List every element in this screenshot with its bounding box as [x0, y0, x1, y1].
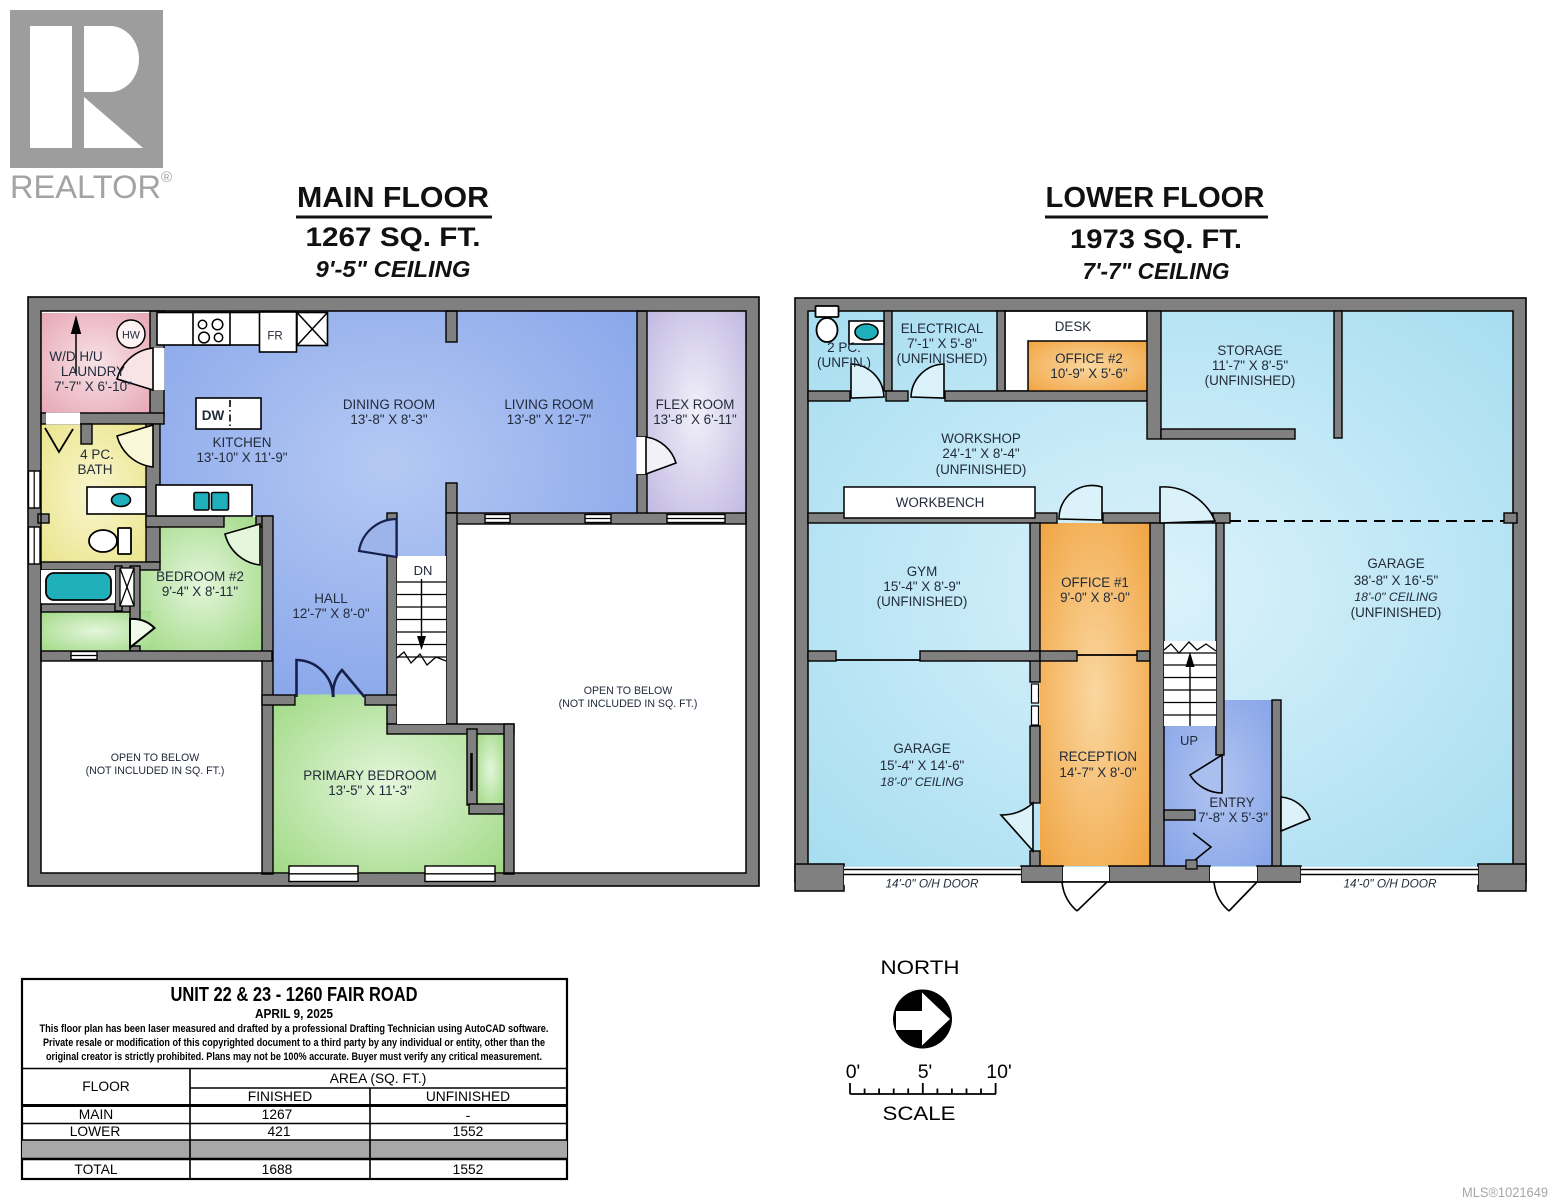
svg-text:LAUNDRY: LAUNDRY: [61, 364, 125, 379]
svg-text:14'-0" O/H DOOR: 14'-0" O/H DOOR: [1344, 877, 1437, 891]
svg-text:LOWER FLOOR: LOWER FLOOR: [1046, 182, 1265, 214]
svg-text:ENTRY: ENTRY: [1209, 795, 1254, 810]
svg-text:(NOT INCLUDED IN SQ. FT.): (NOT INCLUDED IN SQ. FT.): [559, 698, 698, 710]
svg-text:18'-0" CEILING: 18'-0" CEILING: [880, 775, 963, 789]
svg-text:5': 5': [918, 1061, 933, 1083]
svg-text:STORAGE: STORAGE: [1217, 343, 1282, 358]
svg-text:FINISHED: FINISHED: [248, 1089, 312, 1104]
svg-text:FLEX ROOM: FLEX ROOM: [656, 397, 735, 412]
svg-text:7'-8" X 5'-3": 7'-8" X 5'-3": [1198, 810, 1268, 825]
svg-text:13'-8" X 6'-11": 13'-8" X 6'-11": [653, 412, 737, 427]
svg-text:9'-0" X 8'-0": 9'-0" X 8'-0": [1060, 590, 1130, 605]
svg-text:DESK: DESK: [1055, 319, 1092, 334]
svg-text:MAIN FLOOR: MAIN FLOOR: [297, 182, 489, 214]
svg-text:WORKBENCH: WORKBENCH: [896, 495, 985, 510]
svg-text:REALTOR: REALTOR: [10, 169, 161, 205]
svg-text:OPEN TO BELOW: OPEN TO BELOW: [111, 752, 200, 764]
svg-text:15'-4" X 14'-6": 15'-4" X 14'-6": [880, 758, 965, 773]
svg-text:W/D H/U: W/D H/U: [49, 349, 102, 364]
svg-text:GARAGE: GARAGE: [893, 741, 950, 756]
svg-text:(UNFINISHED): (UNFINISHED): [877, 594, 968, 609]
svg-text:DINING ROOM: DINING ROOM: [343, 397, 435, 412]
svg-text:MLS®1021649: MLS®1021649: [1462, 1184, 1548, 1200]
svg-text:13'-5" X 11'-3": 13'-5" X 11'-3": [328, 783, 412, 798]
svg-text:OFFICE #1: OFFICE #1: [1061, 575, 1129, 590]
svg-text:14'-0" O/H DOOR: 14'-0" O/H DOOR: [886, 877, 979, 891]
svg-text:11'-7" X 8'-5": 11'-7" X 8'-5": [1212, 358, 1288, 373]
svg-text:OFFICE #2: OFFICE #2: [1055, 351, 1123, 366]
svg-text:KITCHEN: KITCHEN: [213, 435, 272, 450]
svg-text:(UNFINISHED): (UNFINISHED): [897, 351, 988, 366]
svg-text:1552: 1552: [453, 1124, 484, 1139]
svg-text:This floor plan has been laser: This floor plan has been laser measured …: [40, 1023, 549, 1035]
svg-text:NORTH: NORTH: [881, 957, 960, 979]
svg-text:PRIMARY BEDROOM: PRIMARY BEDROOM: [303, 768, 436, 783]
svg-text:1973 SQ. FT.: 1973 SQ. FT.: [1070, 224, 1242, 254]
svg-text:RECEPTION: RECEPTION: [1059, 749, 1137, 764]
svg-text:WORKSHOP: WORKSHOP: [941, 431, 1021, 446]
svg-text:®: ®: [161, 169, 172, 186]
svg-text:TOTAL: TOTAL: [74, 1162, 118, 1177]
svg-text:7'-1" X 5'-8": 7'-1" X 5'-8": [907, 336, 977, 351]
svg-text:7'-7" CEILING: 7'-7" CEILING: [1083, 258, 1230, 284]
svg-text:13'-8" X 12'-7": 13'-8" X 12'-7": [507, 412, 592, 427]
svg-text:9'-4" X 8'-11": 9'-4" X 8'-11": [162, 584, 238, 599]
svg-text:LIVING ROOM: LIVING ROOM: [504, 397, 593, 412]
svg-text:1267: 1267: [262, 1107, 293, 1122]
svg-text:SCALE: SCALE: [883, 1103, 956, 1125]
svg-text:-: -: [466, 1108, 471, 1123]
svg-text:LOWER: LOWER: [70, 1124, 121, 1139]
svg-text:APRIL 9, 2025: APRIL 9, 2025: [255, 1006, 333, 1021]
svg-text:13'-8" X 8'-3": 13'-8" X 8'-3": [350, 412, 427, 427]
svg-text:AREA (SQ. FT.): AREA (SQ. FT.): [330, 1071, 427, 1086]
svg-text:38'-8" X 16'-5": 38'-8" X 16'-5": [1354, 573, 1439, 588]
svg-text:24'-1" X 8'-4": 24'-1" X 8'-4": [942, 446, 1019, 461]
svg-text:(NOT INCLUDED IN SQ. FT.): (NOT INCLUDED IN SQ. FT.): [86, 765, 225, 777]
svg-text:UP: UP: [1180, 733, 1198, 748]
svg-text:BATH: BATH: [77, 462, 112, 477]
svg-text:ELECTRICAL: ELECTRICAL: [901, 321, 984, 336]
svg-text:421: 421: [267, 1124, 290, 1139]
svg-text:UNIT 22 & 23 - 1260 FAIR ROAD: UNIT 22 & 23 - 1260 FAIR ROAD: [171, 984, 418, 1006]
svg-text:BEDROOM #2: BEDROOM #2: [156, 569, 244, 584]
svg-text:(UNFINISHED): (UNFINISHED): [936, 462, 1027, 477]
svg-text:10'-9" X 5'-6": 10'-9" X 5'-6": [1050, 366, 1127, 381]
svg-text:2 PC.: 2 PC.: [827, 340, 861, 355]
svg-text:DW: DW: [202, 408, 225, 423]
svg-text:1688: 1688: [262, 1162, 293, 1177]
svg-text:1552: 1552: [453, 1162, 484, 1177]
svg-text:13'-10" X 11'-9": 13'-10" X 11'-9": [196, 450, 287, 465]
svg-text:original creator is strictly p: original creator is strictly prohibited.…: [46, 1051, 542, 1063]
svg-text:1267 SQ. FT.: 1267 SQ. FT.: [306, 222, 481, 252]
svg-text:GARAGE: GARAGE: [1367, 556, 1424, 571]
svg-text:HALL: HALL: [314, 591, 348, 606]
svg-text:HW: HW: [122, 330, 141, 342]
svg-text:MAIN: MAIN: [79, 1107, 114, 1122]
svg-text:14'-7" X 8'-0": 14'-7" X 8'-0": [1059, 765, 1136, 780]
svg-text:(UNFINISHED): (UNFINISHED): [1351, 605, 1442, 620]
svg-text:FR: FR: [267, 331, 282, 343]
svg-text:7'-7" X 6'-10": 7'-7" X 6'-10": [54, 379, 132, 394]
svg-text:12'-7" X 8'-0": 12'-7" X 8'-0": [292, 606, 369, 621]
svg-text:(UNFINISHED): (UNFINISHED): [1205, 373, 1296, 388]
svg-text:DN: DN: [414, 563, 433, 578]
svg-text:10': 10': [986, 1061, 1011, 1083]
svg-text:Private resale or modification: Private resale or modification of this c…: [43, 1037, 545, 1049]
svg-text:15'-4" X 8'-9": 15'-4" X 8'-9": [883, 579, 960, 594]
svg-text:(UNFIN.): (UNFIN.): [817, 355, 871, 370]
svg-text:GYM: GYM: [907, 564, 938, 579]
svg-text:FLOOR: FLOOR: [82, 1079, 130, 1094]
svg-text:9'-5" CEILING: 9'-5" CEILING: [316, 256, 471, 282]
svg-text:18'-0" CEILING: 18'-0" CEILING: [1354, 590, 1437, 604]
svg-text:0': 0': [846, 1061, 861, 1083]
svg-text:UNFINISHED: UNFINISHED: [426, 1089, 510, 1104]
svg-text:4 PC.: 4 PC.: [80, 447, 114, 462]
svg-text:OPEN TO BELOW: OPEN TO BELOW: [584, 685, 673, 697]
